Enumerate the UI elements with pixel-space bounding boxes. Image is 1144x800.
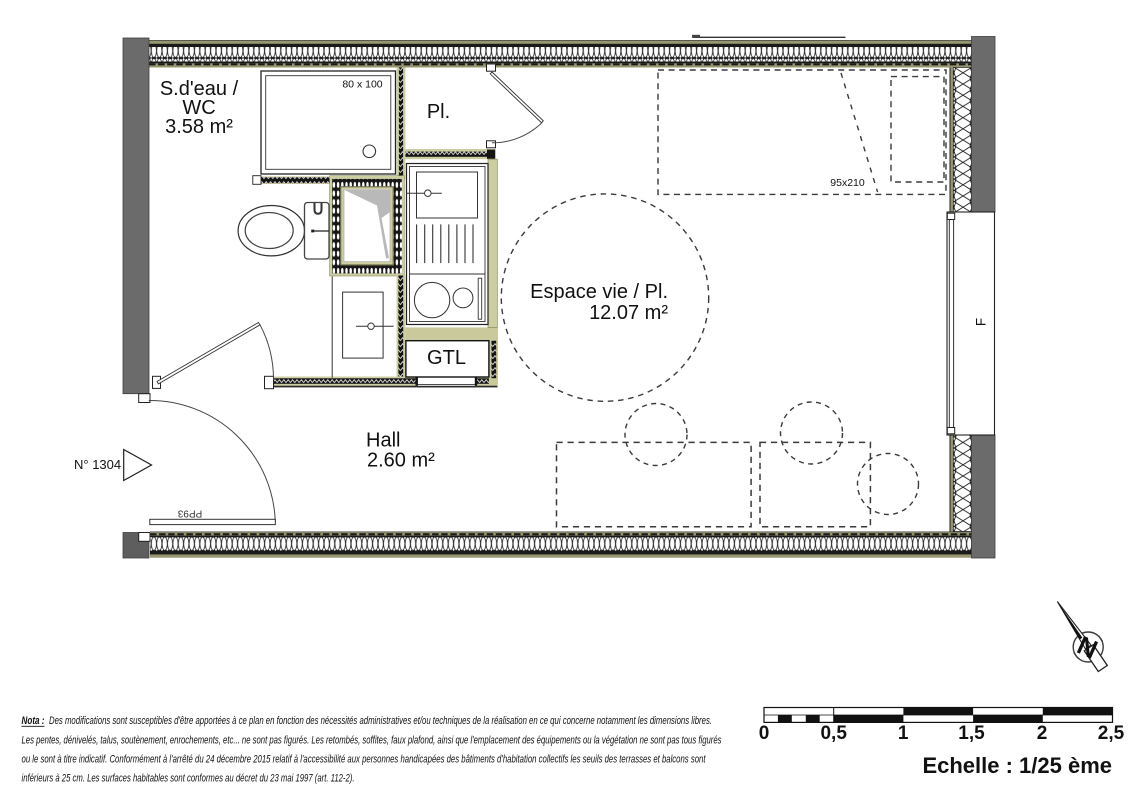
svg-text:0: 0 — [759, 723, 770, 744]
svg-text:Nota :: Nota : — [22, 715, 45, 727]
svg-text:12.07 m²: 12.07 m² — [589, 302, 668, 324]
svg-text:2.60 m²: 2.60 m² — [367, 450, 435, 472]
svg-text:GTL: GTL — [427, 347, 466, 369]
svg-text:inférieurs à 25 cm. Les surfac: inférieurs à 25 cm. Les surfaces habitab… — [22, 773, 355, 785]
svg-text:80 x 100: 80 x 100 — [342, 79, 382, 91]
svg-text:1: 1 — [898, 723, 909, 744]
svg-text:95x210: 95x210 — [830, 177, 865, 189]
svg-text:3.58 m²: 3.58 m² — [165, 116, 233, 138]
svg-text:Espace vie / Pl.: Espace vie / Pl. — [530, 281, 668, 303]
svg-text:F: F — [974, 318, 989, 326]
svg-text:Pl.: Pl. — [427, 101, 450, 123]
svg-text:Hall: Hall — [366, 430, 400, 452]
svg-text:Des modifications sont suscept: Des modifications sont susceptibles d'êt… — [49, 715, 712, 727]
svg-text:N° 1304: N° 1304 — [74, 457, 121, 472]
svg-text:ou le sont à titre indicatif.: ou le sont à titre indicatif. Conforméme… — [22, 754, 707, 766]
svg-text:PP93: PP93 — [177, 507, 202, 518]
svg-text:0,5: 0,5 — [820, 723, 847, 744]
svg-text:2: 2 — [1037, 723, 1048, 744]
svg-text:1,5: 1,5 — [958, 723, 985, 744]
svg-text:Les pentes, dénivelés, talus,: Les pentes, dénivelés, talus, soutènemen… — [22, 734, 722, 746]
svg-text:Echelle : 1/25 ème: Echelle : 1/25 ème — [922, 753, 1112, 778]
svg-text:2,5: 2,5 — [1098, 723, 1125, 744]
